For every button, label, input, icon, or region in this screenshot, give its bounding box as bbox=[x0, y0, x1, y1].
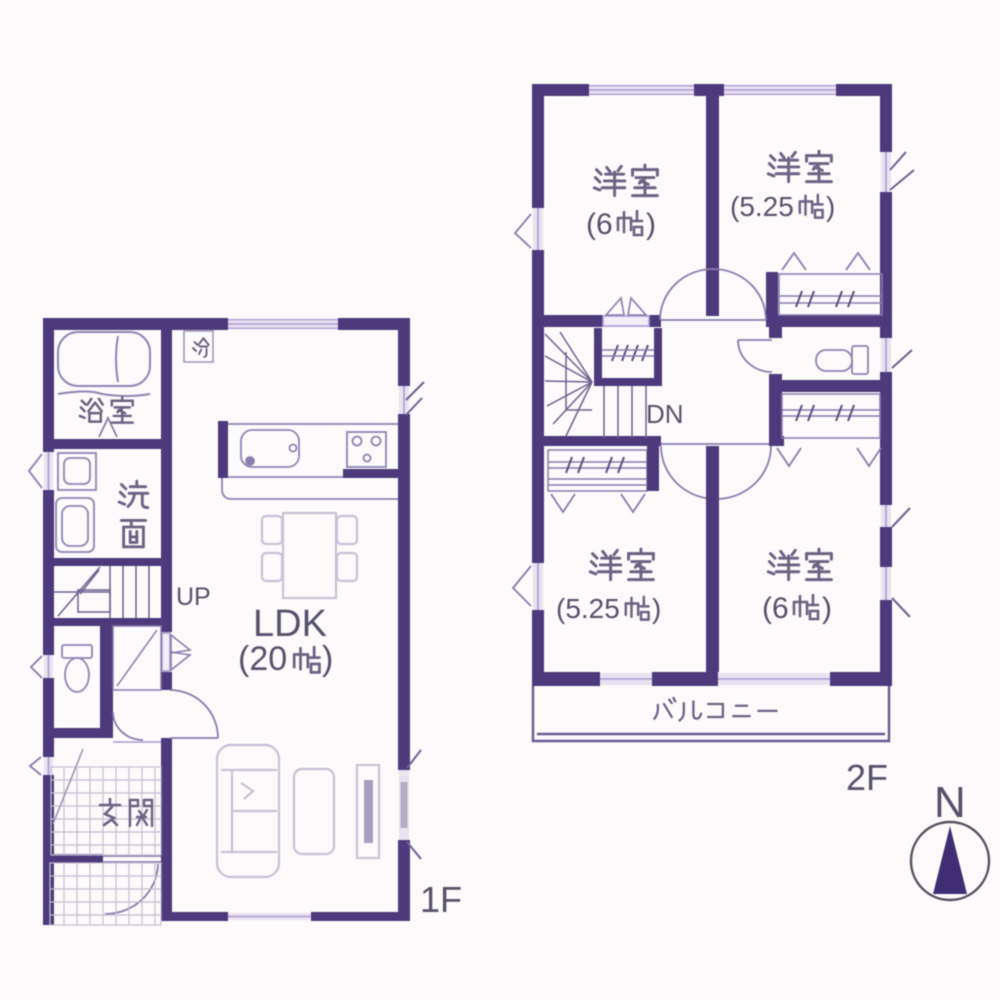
svg-text:): ) bbox=[322, 640, 333, 678]
svg-text:LDK: LDK bbox=[253, 603, 327, 645]
svg-text:): ) bbox=[652, 593, 661, 624]
svg-text:(20: (20 bbox=[238, 640, 287, 678]
svg-text:2F: 2F bbox=[846, 757, 888, 798]
svg-text:(6: (6 bbox=[586, 208, 613, 241]
svg-text:UP: UP bbox=[176, 583, 211, 611]
svg-text:N: N bbox=[934, 778, 966, 827]
svg-text:(5.25: (5.25 bbox=[730, 191, 794, 222]
svg-text:1F: 1F bbox=[420, 879, 462, 920]
svg-text:(6: (6 bbox=[762, 592, 789, 625]
svg-text:): ) bbox=[822, 592, 832, 625]
svg-text:DN: DN bbox=[646, 399, 684, 429]
svg-text:): ) bbox=[826, 191, 835, 222]
svg-text:): ) bbox=[646, 208, 656, 241]
svg-text:(5.25: (5.25 bbox=[556, 593, 620, 624]
